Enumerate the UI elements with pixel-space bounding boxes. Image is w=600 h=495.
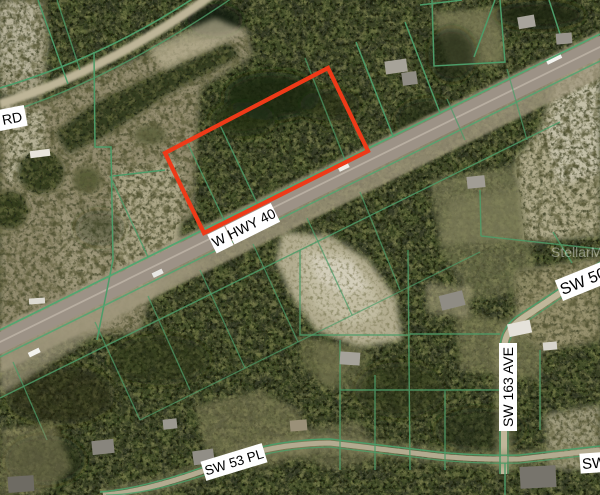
- svg-text:StellarMLS: StellarMLS: [551, 244, 600, 260]
- svg-text:SW 163 AVE: SW 163 AVE: [500, 347, 516, 427]
- svg-text:SW: SW: [581, 454, 600, 473]
